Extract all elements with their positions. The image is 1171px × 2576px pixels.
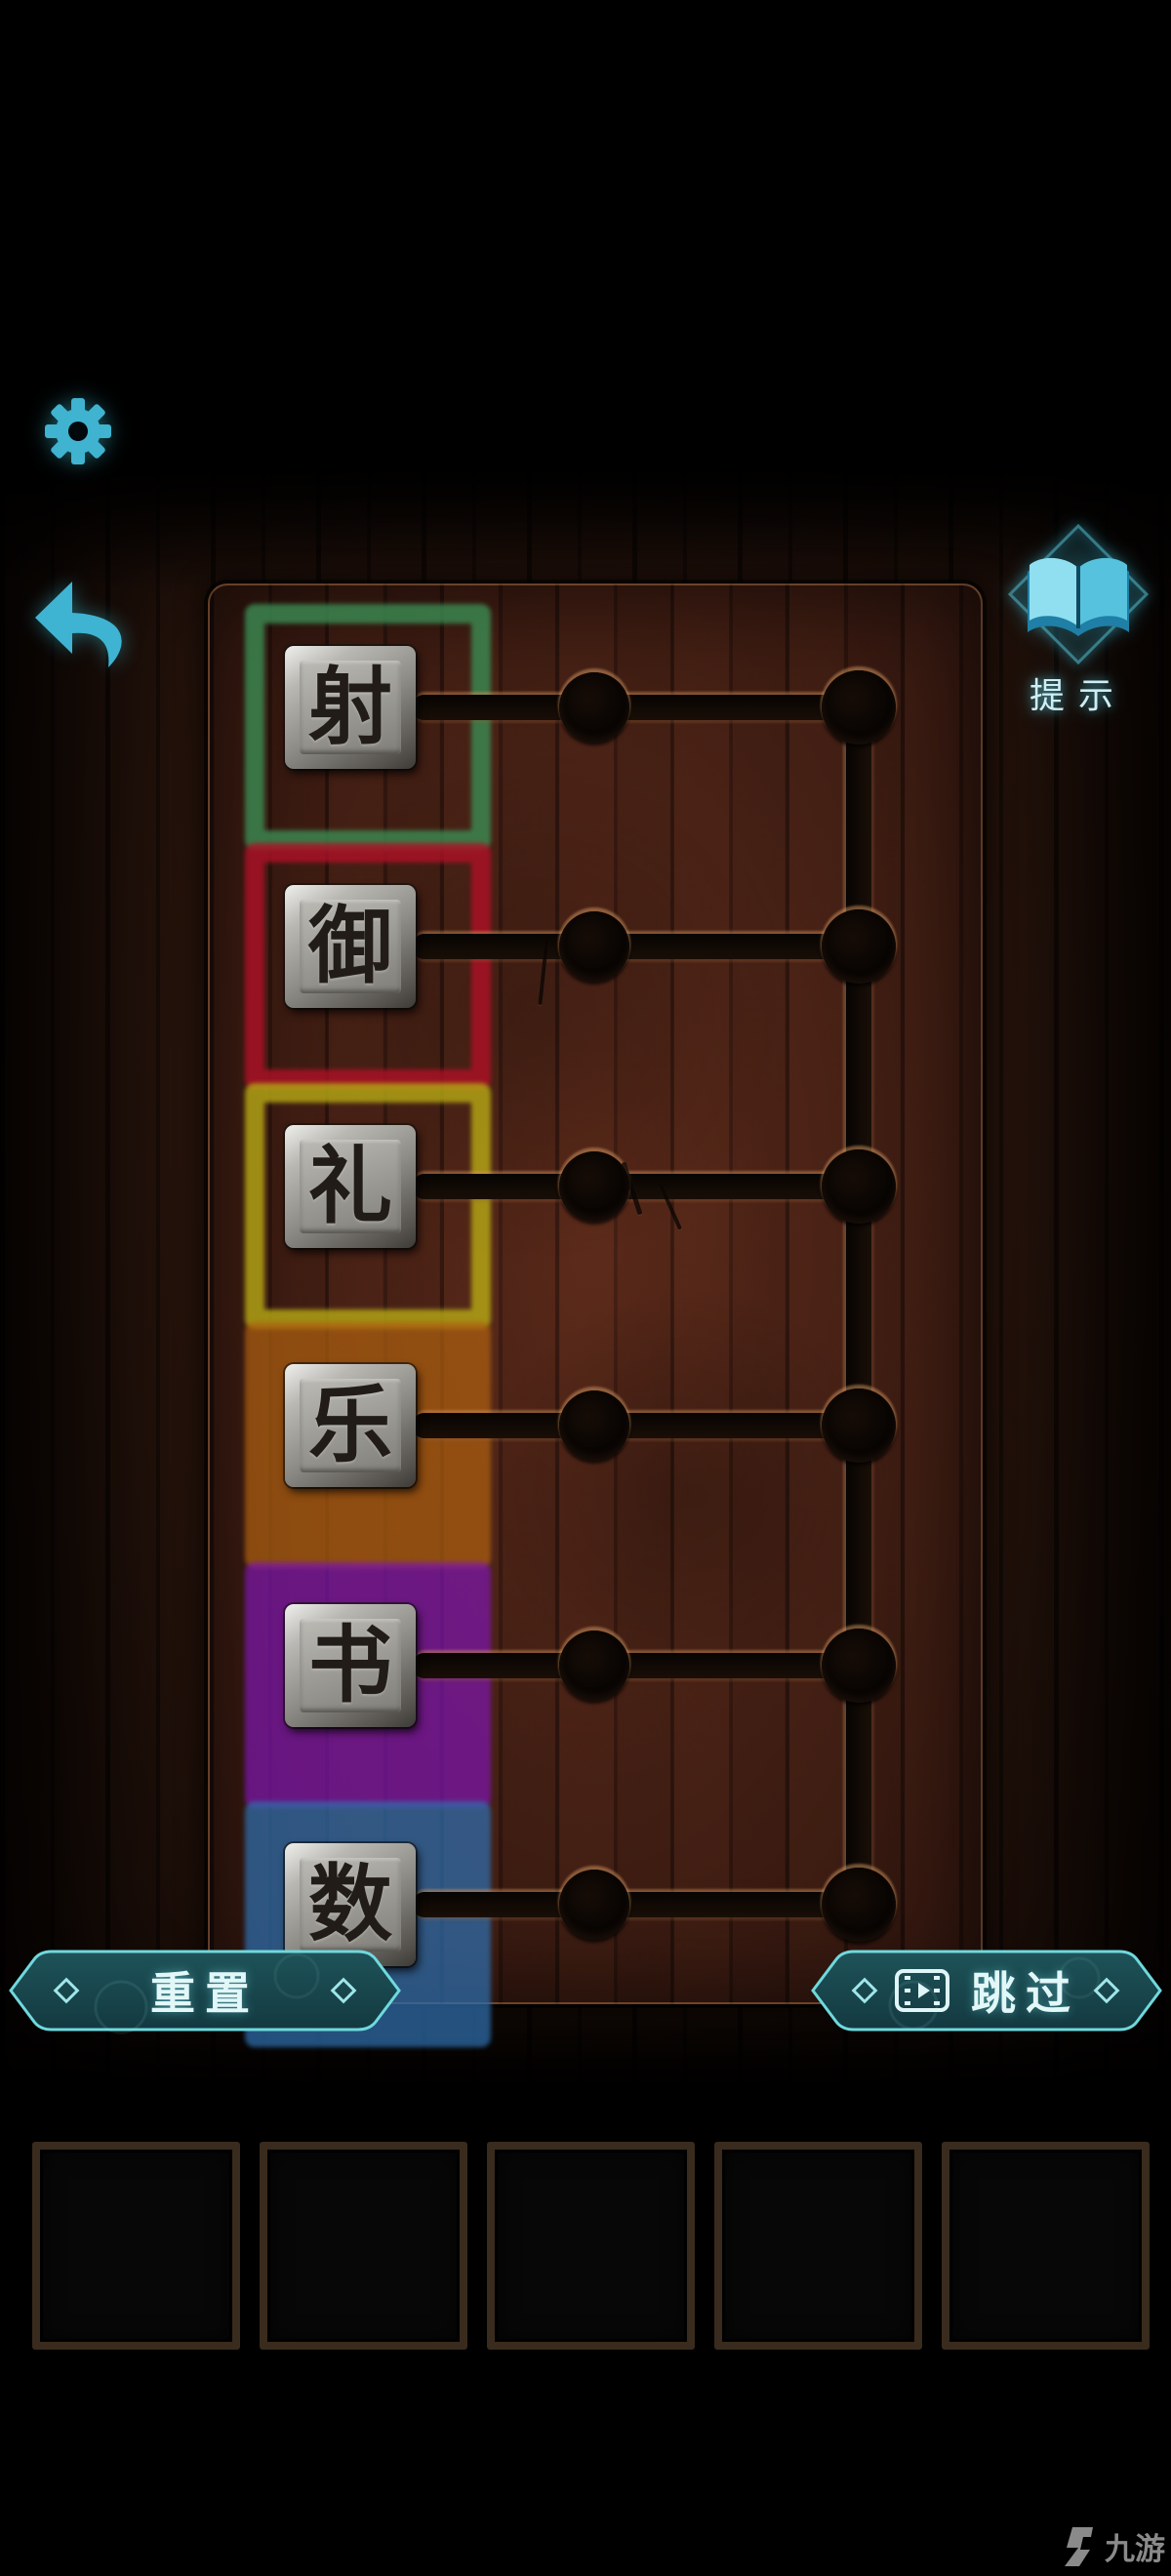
track-node-end — [822, 1629, 896, 1703]
track-node-end — [822, 1868, 896, 1942]
track-node-mid — [559, 1870, 629, 1940]
track-groove — [412, 1892, 859, 1917]
gear-icon — [43, 454, 113, 470]
inventory-slot[interactable] — [487, 2142, 695, 2350]
track-groove — [412, 934, 859, 959]
character-tile[interactable]: 射 — [285, 646, 416, 769]
character-tile[interactable]: 御 — [285, 885, 416, 1008]
tile-character: 射 — [308, 665, 392, 749]
track-node-mid — [559, 1151, 629, 1222]
inventory-slot[interactable] — [714, 2142, 922, 2350]
track-node-end — [822, 1389, 896, 1463]
track-node-end — [822, 1149, 896, 1224]
track-node-mid — [559, 1630, 629, 1701]
character-tile[interactable]: 礼 — [285, 1125, 416, 1248]
tile-face: 乐 — [300, 1379, 401, 1472]
game-screen: 提示 射御礼乐书数 重置 — [0, 0, 1171, 2576]
hint-button[interactable]: 提示 — [997, 535, 1159, 716]
track-groove — [412, 1653, 859, 1678]
tile-face: 数 — [300, 1858, 401, 1952]
settings-button[interactable] — [43, 396, 113, 466]
tile-face: 书 — [300, 1619, 401, 1712]
puzzle-board: 射御礼乐书数 — [208, 584, 983, 2004]
jiuyou-logo-icon — [1064, 2527, 1097, 2566]
watermark-text: 九游 — [1105, 2524, 1165, 2568]
back-arrow-icon — [29, 661, 137, 677]
tile-character: 御 — [308, 905, 392, 988]
watermark: 九游 — [1064, 2524, 1165, 2568]
reset-label: 重置 — [4, 1947, 406, 2034]
tile-character: 礼 — [308, 1145, 392, 1228]
skip-button[interactable]: 跳过 — [806, 1947, 1167, 2034]
track-groove — [412, 695, 859, 720]
track-node-end — [822, 909, 896, 984]
open-book-icon — [1019, 550, 1138, 653]
hint-label: 提示 — [997, 667, 1159, 718]
character-tile[interactable]: 乐 — [285, 1364, 416, 1487]
character-tile[interactable]: 书 — [285, 1604, 416, 1727]
reset-button[interactable]: 重置 — [4, 1947, 406, 2034]
tile-character: 乐 — [308, 1384, 392, 1468]
tile-face: 御 — [300, 900, 401, 993]
tile-character: 数 — [308, 1863, 392, 1947]
track-node-mid — [559, 1390, 629, 1461]
inventory-slot[interactable] — [32, 2142, 240, 2350]
film-icon — [893, 1966, 951, 2015]
track-node-mid — [559, 672, 629, 743]
inventory-slot[interactable] — [260, 2142, 467, 2350]
inventory-slot[interactable] — [942, 2142, 1150, 2350]
tile-character: 书 — [308, 1624, 392, 1708]
tile-face: 礼 — [300, 1140, 401, 1233]
track-groove — [412, 1413, 859, 1438]
back-button[interactable] — [29, 576, 137, 673]
vertical-track — [846, 707, 871, 1905]
track-node-mid — [559, 911, 629, 982]
tile-face: 射 — [300, 661, 401, 754]
skip-label: 跳过 — [971, 1958, 1080, 2023]
track-node-end — [822, 670, 896, 745]
